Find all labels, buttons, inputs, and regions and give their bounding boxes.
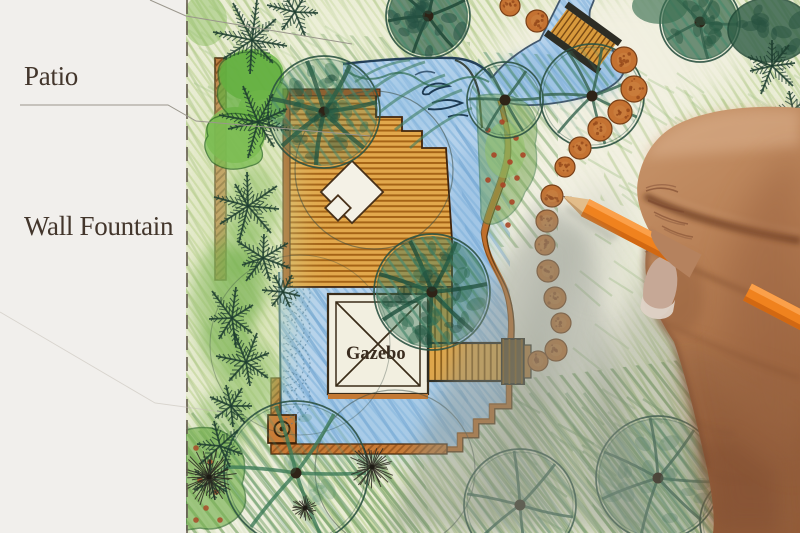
svg-text:Wall Fountain: Wall Fountain — [24, 211, 174, 241]
svg-text:Gazebo: Gazebo — [346, 344, 406, 364]
svg-text:Patio: Patio — [24, 61, 78, 91]
